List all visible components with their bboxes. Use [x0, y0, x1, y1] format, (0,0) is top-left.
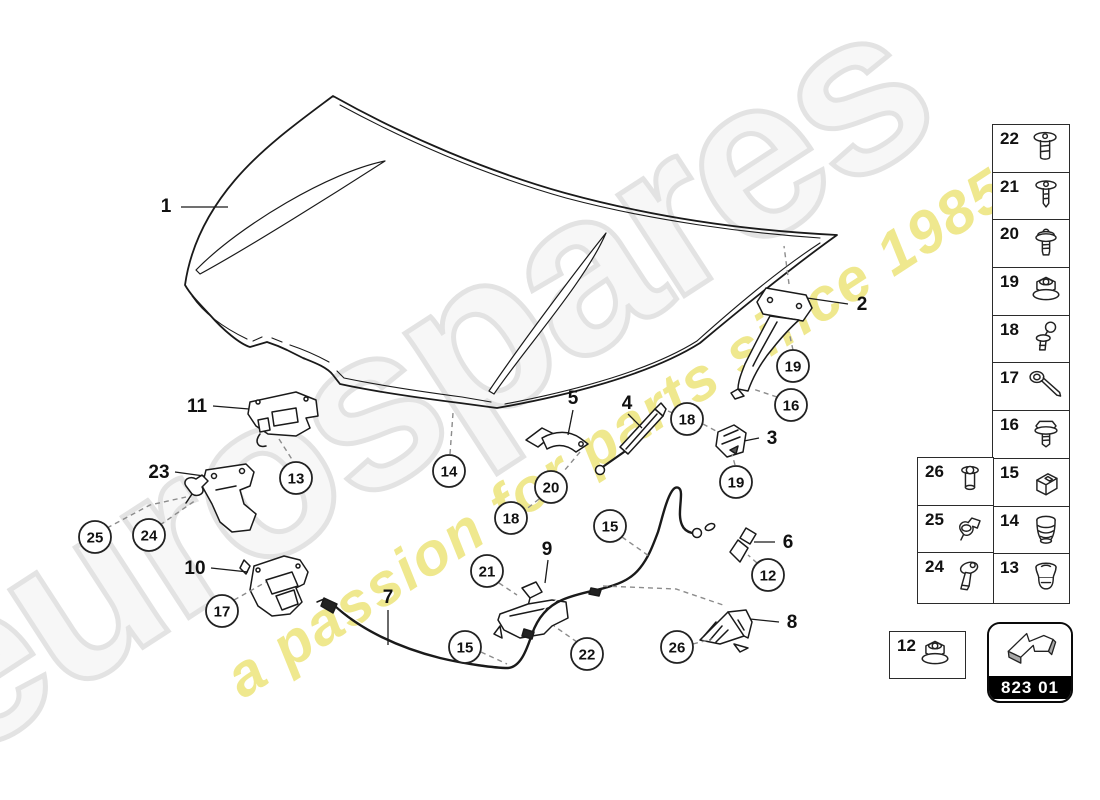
legend-cell: 13 — [993, 554, 1069, 602]
svg-text:17: 17 — [214, 604, 231, 621]
svg-text:14: 14 — [441, 464, 458, 481]
part-number-label: 9 — [542, 539, 553, 560]
bonnet-parts-diagram-page: eurospares a passion for parts since 198… — [0, 0, 1100, 800]
part-hood-latch-lower — [240, 556, 308, 616]
clip-icon — [1026, 462, 1066, 502]
svg-text:19: 19 — [785, 359, 802, 376]
part-number-label: 4 — [622, 393, 633, 414]
legend-cell: 15 — [993, 459, 1069, 507]
legend-cell: 19 — [993, 268, 1069, 316]
diagram-code: 823 01 — [989, 676, 1071, 699]
legend-cell: 16 — [993, 411, 1069, 459]
part-lock-pin — [700, 610, 752, 652]
push-pin-icon — [950, 557, 990, 597]
callout-circle: 19 — [777, 350, 809, 382]
part-number-label: 2 — [857, 294, 868, 315]
diagram-code-badge: 823 01 — [987, 622, 1073, 703]
callout-circle: 15 — [449, 631, 481, 663]
part-number-label: 3 — [767, 428, 778, 449]
bonnet-outline — [185, 96, 837, 408]
part-number-label: 5 — [568, 388, 579, 409]
legend-part-number: 12 — [897, 636, 916, 656]
callout-circle: 18 — [495, 502, 527, 534]
legend-part-number: 21 — [1000, 177, 1019, 197]
legend-part-number: 13 — [1000, 558, 1019, 578]
svg-text:21: 21 — [479, 564, 496, 581]
legend-cell: 24 — [918, 553, 993, 601]
eye-bolt-icon — [1026, 367, 1066, 407]
callout-circle: 26 — [661, 631, 693, 663]
legend-cell: 17 — [993, 364, 1069, 412]
part-number-label: 11 — [187, 396, 208, 417]
part-number-label: 10 — [184, 558, 205, 579]
washer-screw-icon — [1026, 176, 1066, 216]
callout-circle: 13 — [280, 462, 312, 494]
callout-circle: 17 — [206, 595, 238, 627]
legend-part-number: 17 — [1000, 368, 1019, 388]
legend-nut-box: 12 — [889, 631, 966, 679]
legend-cell: 25 — [918, 506, 993, 554]
legend-side-column: 262524 — [917, 457, 994, 604]
svg-text:20: 20 — [543, 480, 560, 497]
exploded-diagram: 1317252414201821151522261218191619 11123… — [0, 0, 1100, 800]
part-number-label: 1 — [161, 196, 172, 217]
part-hinge — [731, 288, 812, 399]
legend-part-number: 14 — [1000, 511, 1019, 531]
shoulder-screw-icon — [1026, 224, 1066, 264]
legend-part-number: 25 — [925, 510, 944, 530]
legend-cell: 18 — [993, 316, 1069, 364]
callout-circle: 25 — [79, 521, 111, 553]
svg-text:18: 18 — [679, 412, 696, 429]
svg-text:25: 25 — [87, 530, 104, 547]
callout-circle: 20 — [535, 471, 567, 503]
flange-nut-icon — [1026, 271, 1066, 311]
svg-text:15: 15 — [457, 640, 474, 657]
svg-text:16: 16 — [783, 398, 800, 415]
legend-part-number: 18 — [1000, 320, 1019, 340]
callout-circle: 15 — [594, 510, 626, 542]
retainer-clip-icon — [950, 509, 990, 549]
part-number-label: 6 — [783, 532, 794, 553]
legend-part-number: 20 — [1000, 224, 1019, 244]
arrow-icon — [998, 625, 1062, 676]
callout-circle: 22 — [571, 638, 603, 670]
rubber-buffer-icon — [1026, 510, 1066, 550]
callout-circle: 18 — [671, 403, 703, 435]
svg-text:12: 12 — [760, 568, 777, 585]
svg-text:24: 24 — [141, 528, 158, 545]
legend-cell: 14 — [993, 507, 1069, 555]
ball-stud-icon — [1026, 319, 1066, 359]
push-rivet-icon — [1026, 128, 1066, 168]
callout-circle: 16 — [775, 389, 807, 421]
rivnut-icon — [950, 461, 990, 501]
part-bracket-5 — [526, 428, 588, 452]
callout-circle: 19 — [720, 466, 752, 498]
grommet-icon — [1026, 558, 1066, 598]
legend-part-number: 19 — [1000, 272, 1019, 292]
legend-cell: 20 — [993, 220, 1069, 268]
legend-part-number: 16 — [1000, 415, 1019, 435]
svg-text:18: 18 — [503, 511, 520, 528]
svg-text:13: 13 — [288, 471, 305, 488]
part-number-label: 7 — [383, 587, 394, 608]
part-clamp-3 — [716, 425, 746, 457]
legend-main-column: 22212019181716151413 — [992, 124, 1070, 604]
legend-cell: 22 — [993, 125, 1069, 173]
legend-cell: 21 — [993, 173, 1069, 221]
svg-text:15: 15 — [602, 519, 619, 536]
legend-part-number: 15 — [1000, 463, 1019, 483]
svg-text:26: 26 — [669, 640, 686, 657]
hex-bolt-icon — [1026, 415, 1066, 455]
flange-nut-icon — [915, 635, 955, 675]
legend-part-number: 26 — [925, 462, 944, 482]
legend-part-number: 22 — [1000, 129, 1019, 149]
callout-circle: 21 — [471, 555, 503, 587]
legend-cell: 26 — [918, 458, 993, 506]
part-number-label: 8 — [787, 612, 798, 633]
legend-part-number: 24 — [925, 557, 944, 577]
svg-text:19: 19 — [728, 475, 745, 492]
svg-text:22: 22 — [579, 647, 596, 664]
callout-circle: 12 — [752, 559, 784, 591]
part-hood-latch-upper — [248, 392, 318, 446]
part-lever-6 — [730, 528, 756, 562]
part-number-label: 23 — [148, 462, 169, 483]
callout-circle: 24 — [133, 519, 165, 551]
callout-circle: 14 — [433, 455, 465, 487]
